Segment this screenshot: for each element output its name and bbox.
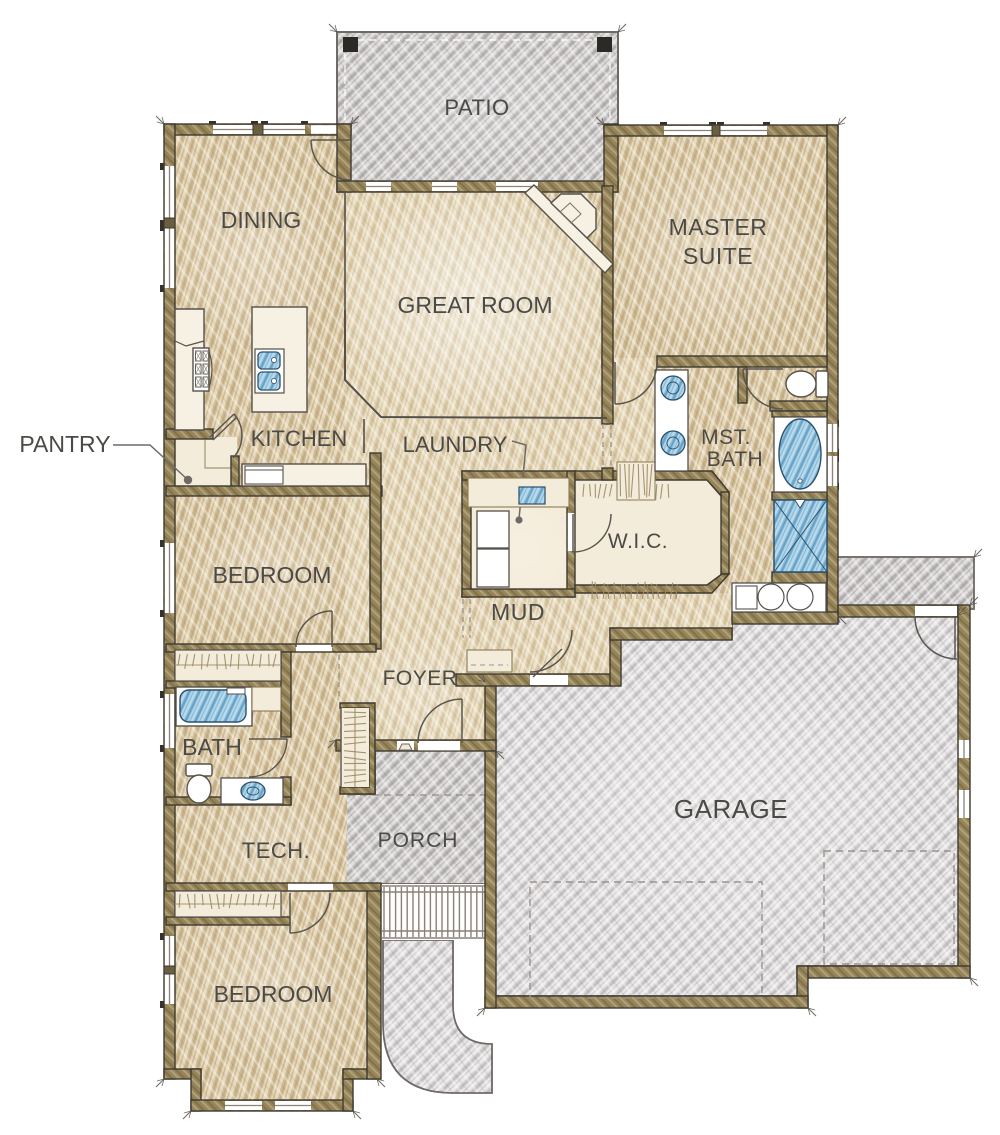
svg-text:TECH.: TECH. (242, 838, 311, 863)
svg-text:BATH: BATH (707, 448, 763, 471)
svg-text:SUITE: SUITE (683, 243, 753, 269)
svg-text:GREAT ROOM: GREAT ROOM (397, 292, 552, 318)
svg-text:BEDROOM: BEDROOM (214, 981, 333, 1007)
svg-text:MUD: MUD (491, 599, 545, 625)
svg-text:DINING: DINING (221, 207, 302, 233)
svg-text:PATIO: PATIO (444, 95, 509, 120)
svg-text:KITCHEN: KITCHEN (251, 426, 348, 451)
svg-text:W.I.C.: W.I.C. (608, 530, 668, 553)
svg-text:PORCH: PORCH (378, 829, 459, 852)
svg-text:GARAGE: GARAGE (674, 794, 788, 824)
svg-text:MASTER: MASTER (669, 214, 768, 240)
svg-text:BEDROOM: BEDROOM (213, 562, 332, 588)
svg-text:BATH: BATH (182, 734, 242, 760)
svg-text:FOYER: FOYER (383, 667, 458, 690)
svg-text:LAUNDRY: LAUNDRY (403, 432, 508, 457)
svg-text:PANTRY: PANTRY (19, 431, 110, 457)
svg-text:MST.: MST. (701, 426, 751, 449)
